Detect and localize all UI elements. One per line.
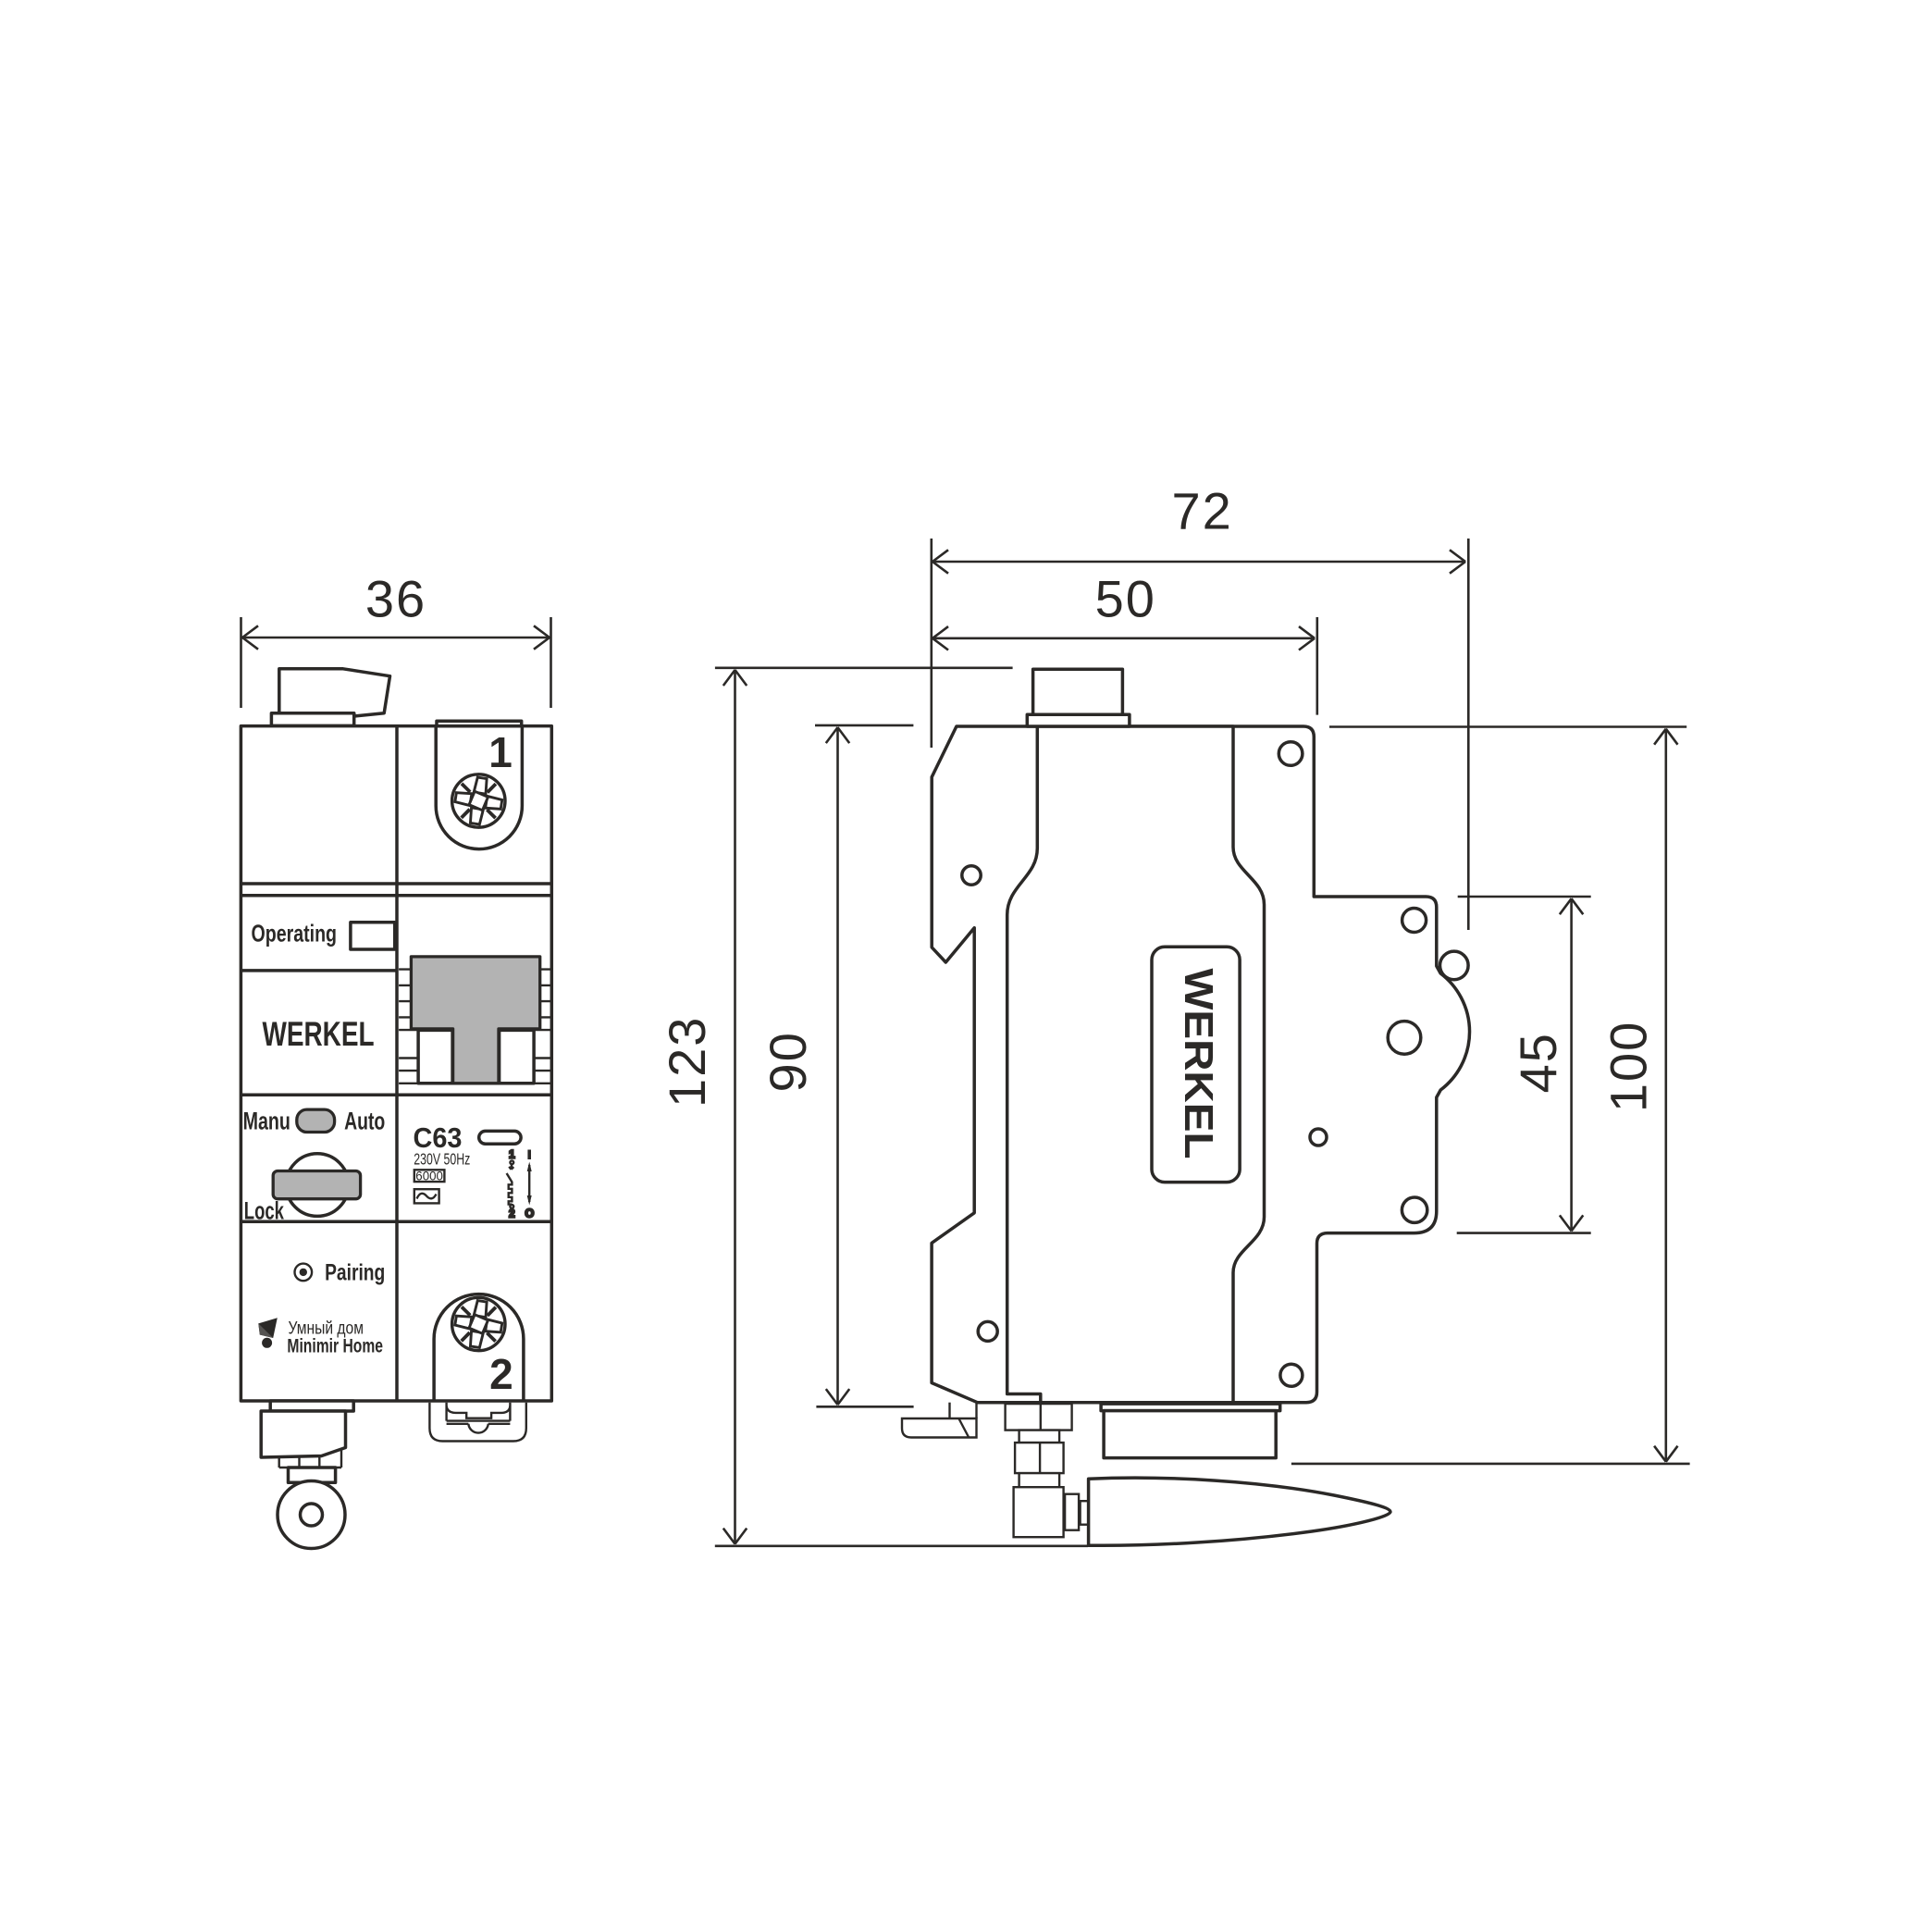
svg-text:45: 45	[1509, 1032, 1567, 1093]
svg-text:50: 50	[1095, 570, 1156, 628]
svg-text:Manu: Manu	[243, 1108, 290, 1135]
svg-text:72: 72	[1171, 482, 1232, 540]
svg-text:WERKEL: WERKEL	[263, 1015, 375, 1053]
svg-text:Pairing: Pairing	[325, 1260, 385, 1286]
svg-text:100: 100	[1600, 1021, 1658, 1112]
svg-text:1: 1	[509, 1150, 515, 1161]
svg-text:Operating: Operating	[252, 920, 338, 947]
svg-text:Lock: Lock	[244, 1197, 285, 1225]
svg-text:WERKEL: WERKEL	[1176, 969, 1221, 1159]
svg-text:6000: 6000	[415, 1168, 443, 1183]
svg-text:2: 2	[489, 1350, 513, 1398]
svg-text:230V 50Hz: 230V 50Hz	[414, 1150, 470, 1169]
svg-text:123: 123	[658, 1016, 716, 1108]
svg-text:1: 1	[488, 728, 513, 776]
svg-text:90: 90	[759, 1031, 817, 1092]
svg-text:2: 2	[509, 1209, 514, 1220]
svg-text:Auto: Auto	[344, 1108, 385, 1135]
svg-text:36: 36	[365, 570, 426, 628]
svg-text:Minimir Home: Minimir Home	[287, 1336, 383, 1357]
svg-text:O: O	[525, 1207, 535, 1220]
